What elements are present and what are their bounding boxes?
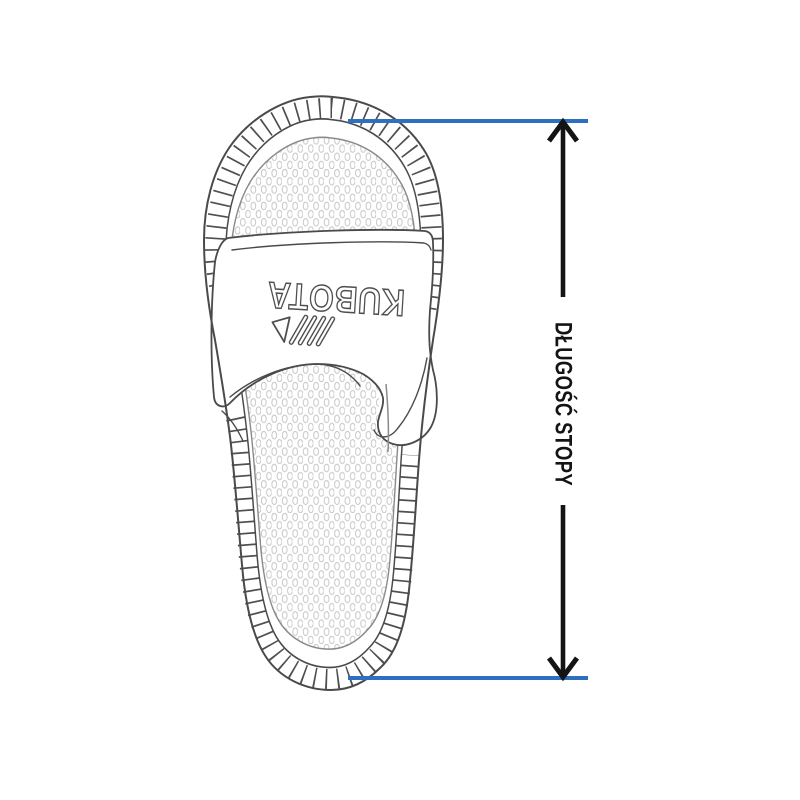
size-guide-diagram: KUBOTA bbox=[0, 0, 800, 800]
size-guide-page: KUBOTA bbox=[0, 0, 800, 800]
measure-label: DŁUGOŚĆ STOPY bbox=[550, 322, 578, 486]
sandal-illustration: KUBOTA bbox=[204, 96, 443, 690]
brand-text: KUBOTA bbox=[266, 274, 406, 323]
